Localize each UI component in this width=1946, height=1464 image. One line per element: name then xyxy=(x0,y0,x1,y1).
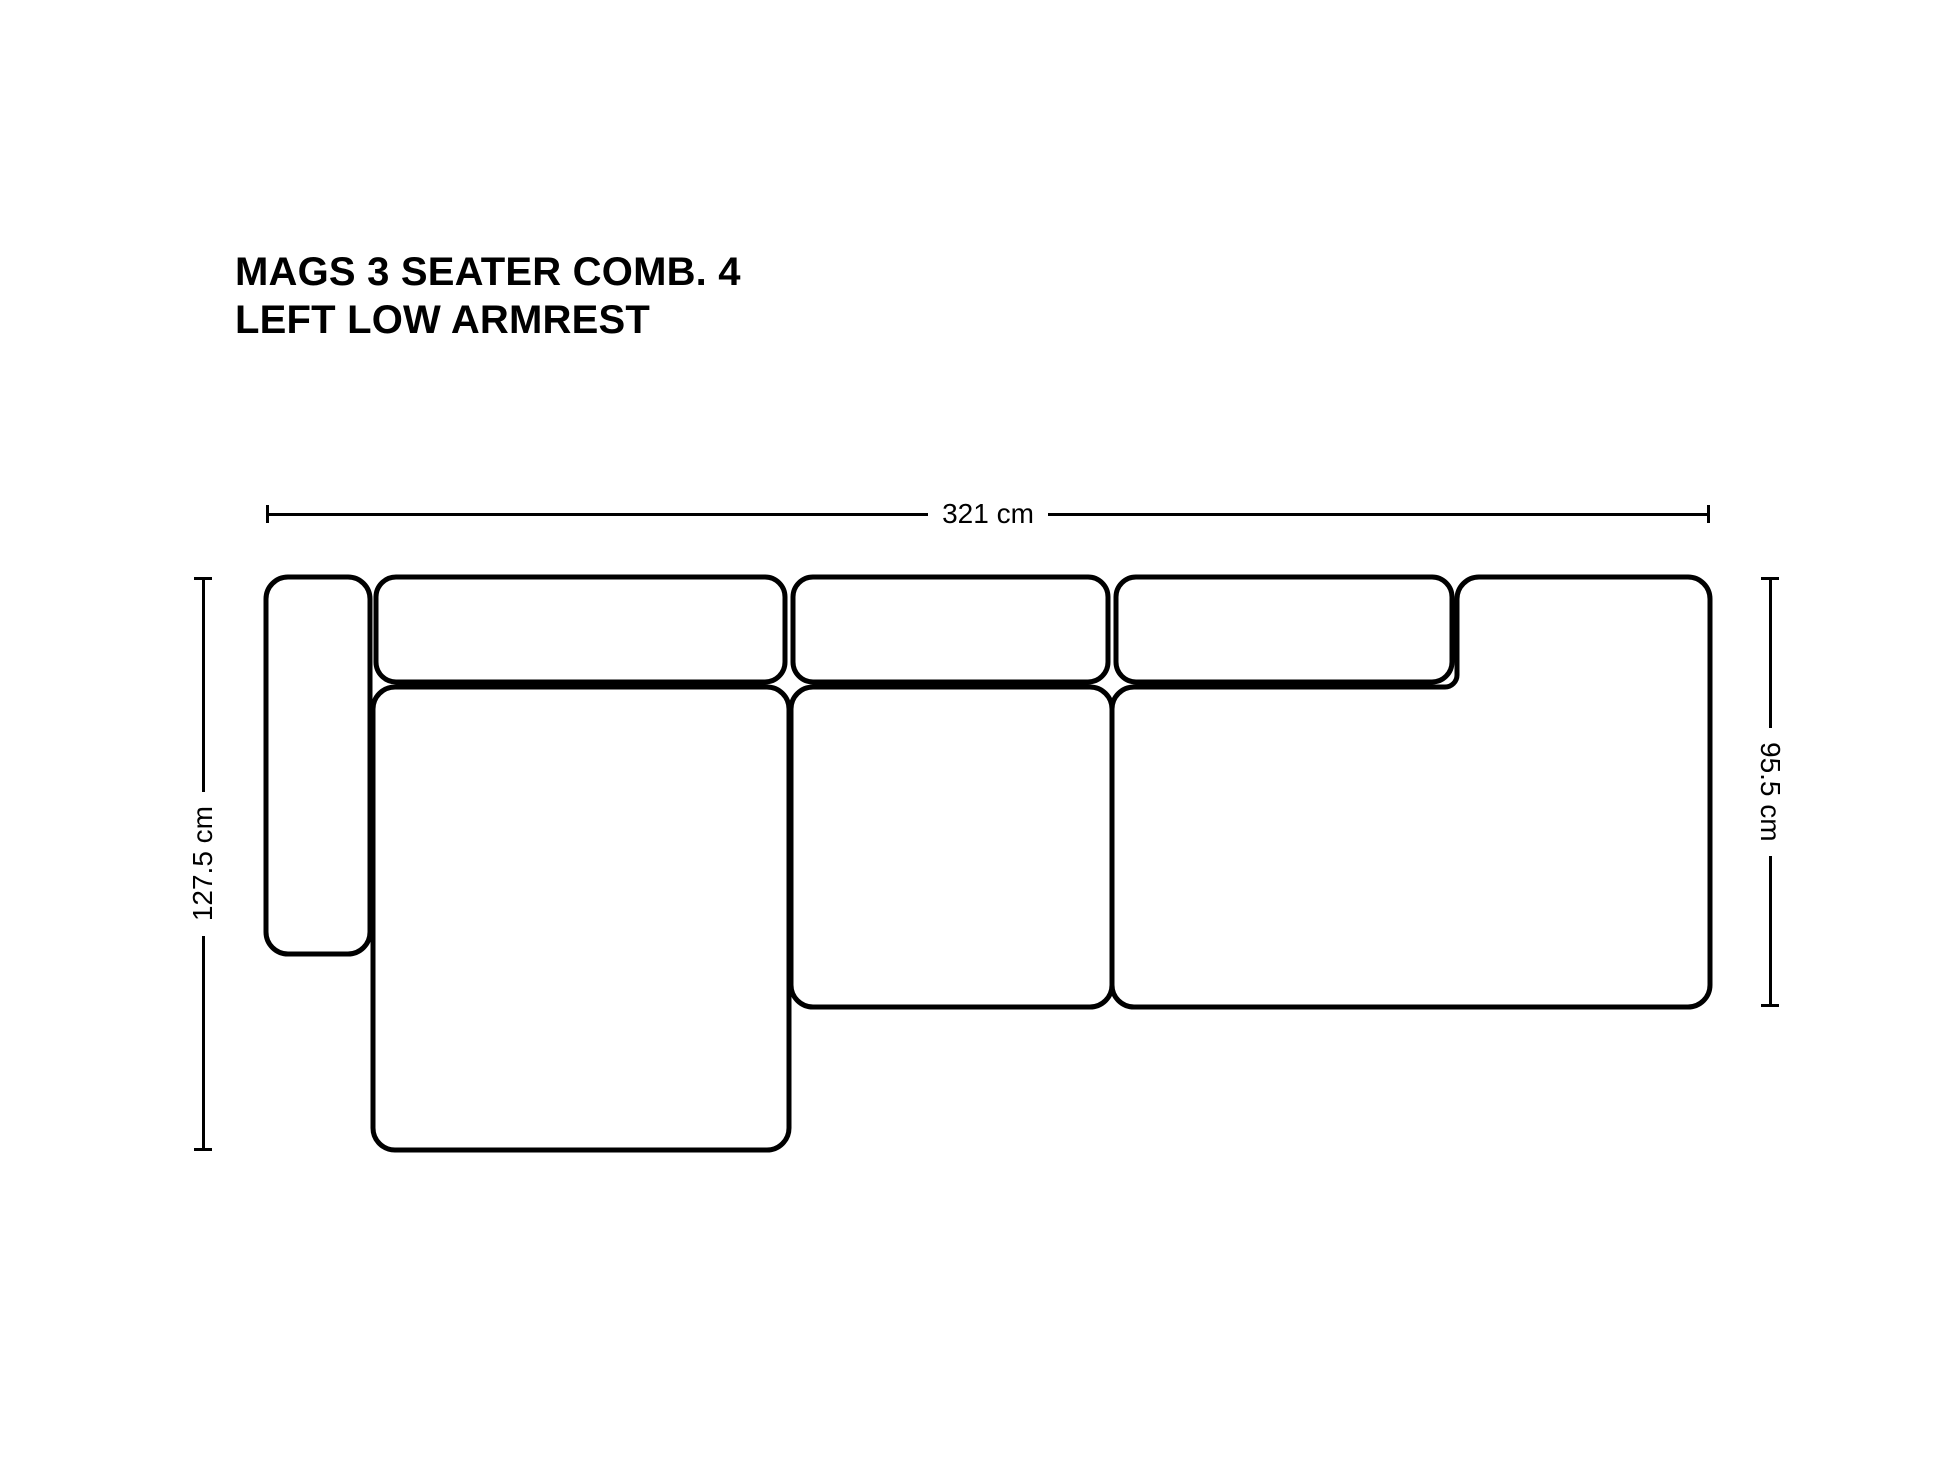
back-cushion-2 xyxy=(793,577,1108,682)
middle-seat-module xyxy=(791,687,1112,1007)
product-dimension-diagram: MAGS 3 SEATER COMB. 4 LEFT LOW ARMREST 3… xyxy=(0,0,1946,1464)
sofa-outline-drawing xyxy=(0,0,1946,1464)
back-cushion-1 xyxy=(376,577,785,682)
back-cushion-3 xyxy=(1116,577,1452,682)
left-low-armrest-module xyxy=(266,577,370,954)
chaise-seat-module xyxy=(373,687,789,1150)
